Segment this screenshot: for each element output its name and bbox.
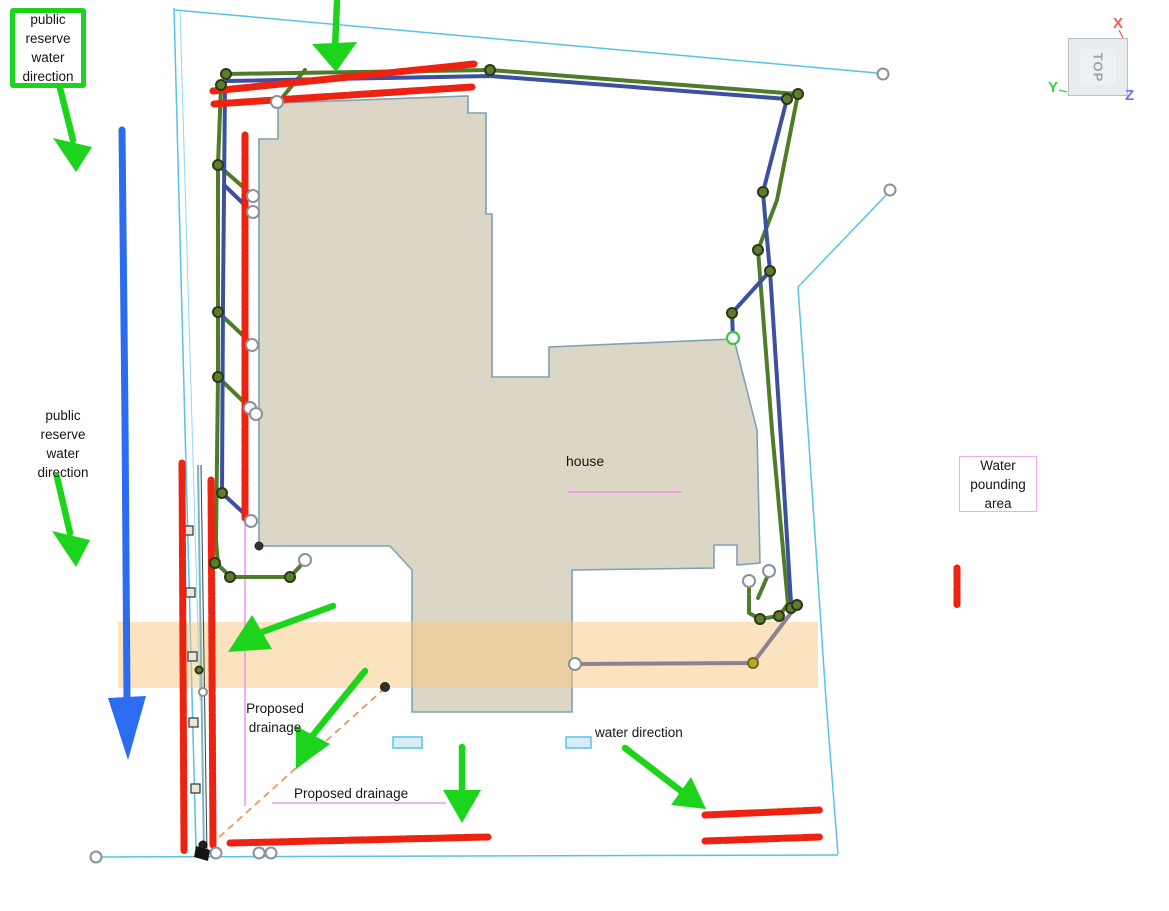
corner-node[interactable] <box>255 542 263 550</box>
pipe-node[interactable] <box>285 572 295 582</box>
pipe-node[interactable] <box>213 307 223 317</box>
downpipe-circle[interactable] <box>247 206 259 218</box>
pipe-green-stub[interactable] <box>758 575 768 598</box>
downpipe-circle[interactable] <box>743 575 755 587</box>
house-label: house <box>566 452 604 471</box>
public-reserve-note-top: public reserve water direction <box>22 10 73 86</box>
fence-post[interactable] <box>186 588 195 597</box>
endpoint-circle[interactable] <box>266 848 277 859</box>
downpipe-circle[interactable] <box>247 190 259 202</box>
pipe-node[interactable] <box>774 611 784 621</box>
boundary-right-line[interactable] <box>798 191 890 854</box>
arrow-head <box>312 42 357 72</box>
house-footprint[interactable] <box>259 96 760 712</box>
drainage-pit[interactable] <box>566 737 591 748</box>
arrow-shaft <box>60 88 73 140</box>
corner-node[interactable] <box>199 841 207 849</box>
pipe-node[interactable] <box>727 308 737 318</box>
pipe-node[interactable] <box>225 572 235 582</box>
pipe-node[interactable] <box>221 69 231 79</box>
public-reserve-note-mid: public reserve water direction <box>26 406 100 482</box>
arrow-shaft <box>122 130 127 700</box>
red-marker <box>230 837 488 843</box>
red-marker <box>182 463 184 852</box>
red-marker <box>705 810 820 815</box>
downpipe-circle[interactable] <box>245 515 257 527</box>
arrow-head <box>443 790 481 823</box>
arrow-head <box>53 138 92 172</box>
endpoint-circle[interactable] <box>885 185 896 196</box>
fence-node[interactable] <box>196 667 203 674</box>
fence-circle[interactable] <box>199 688 207 696</box>
water-pounding-band <box>118 622 818 688</box>
axis-y-tick <box>1059 90 1067 92</box>
axis-y-label[interactable]: Y <box>1048 79 1058 96</box>
pipe-node[interactable] <box>755 614 765 624</box>
boundary-top-line[interactable] <box>175 10 877 73</box>
pipe-node[interactable] <box>753 245 763 255</box>
downpipe-circle[interactable] <box>271 96 283 108</box>
arrow-head <box>52 531 90 567</box>
downpipe-circle[interactable] <box>299 554 311 566</box>
fence-post[interactable] <box>189 718 198 727</box>
arrow-shaft <box>57 477 70 533</box>
pipe-node[interactable] <box>758 187 768 197</box>
pipe-node-yellow[interactable] <box>748 658 758 668</box>
water-pounding-label: Water pounding area <box>970 456 1026 513</box>
downpipe-circle[interactable] <box>569 658 581 670</box>
endpoint-circle[interactable] <box>211 848 222 859</box>
fence-post[interactable] <box>191 784 200 793</box>
pipe-node[interactable] <box>782 94 792 104</box>
water-pounding-label-box[interactable]: Water pounding area <box>959 456 1037 512</box>
downpipe-circle[interactable] <box>250 408 262 420</box>
drainage-pit[interactable] <box>393 737 422 748</box>
red-marker <box>705 837 820 841</box>
drainage-start-node[interactable] <box>381 683 390 692</box>
axis-x-label[interactable]: X <box>1113 15 1123 32</box>
pipe-node[interactable] <box>213 160 223 170</box>
pipe-node[interactable] <box>217 488 227 498</box>
proposed-drainage-label-left: Proposed drainage <box>238 699 312 737</box>
pipe-node[interactable] <box>213 372 223 382</box>
water-direction-label: water direction <box>595 723 683 742</box>
pipe-node[interactable] <box>793 89 803 99</box>
downpipe-circle[interactable] <box>763 565 775 577</box>
viewcube-face-label: TOP <box>1091 52 1106 82</box>
proposed-drainage-label-bottom: Proposed drainage <box>294 784 408 803</box>
endpoint-circle[interactable] <box>878 69 889 80</box>
pipe-node[interactable] <box>792 600 802 610</box>
fence-post[interactable] <box>188 652 197 661</box>
endpoint-circle[interactable] <box>254 848 265 859</box>
downpipe-circle[interactable] <box>246 339 258 351</box>
viewcube-face[interactable]: TOP <box>1080 49 1116 85</box>
arrow-head <box>671 777 706 809</box>
pipe-node[interactable] <box>216 80 226 90</box>
viewcube[interactable]: TOP <box>1068 38 1128 96</box>
pipe-node[interactable] <box>765 266 775 276</box>
arrow-shaft <box>625 748 681 791</box>
endpoint-circle[interactable] <box>91 852 102 863</box>
arrow-head <box>108 696 146 760</box>
arrow-shaft <box>335 2 337 48</box>
axis-z-label[interactable]: Z <box>1125 87 1134 104</box>
pipe-node-highlighted[interactable] <box>727 332 739 344</box>
pipe-node[interactable] <box>210 558 220 568</box>
red-marker <box>211 480 213 845</box>
public-reserve-note-box[interactable]: public reserve water direction <box>10 8 86 88</box>
pipe-node[interactable] <box>485 65 495 75</box>
